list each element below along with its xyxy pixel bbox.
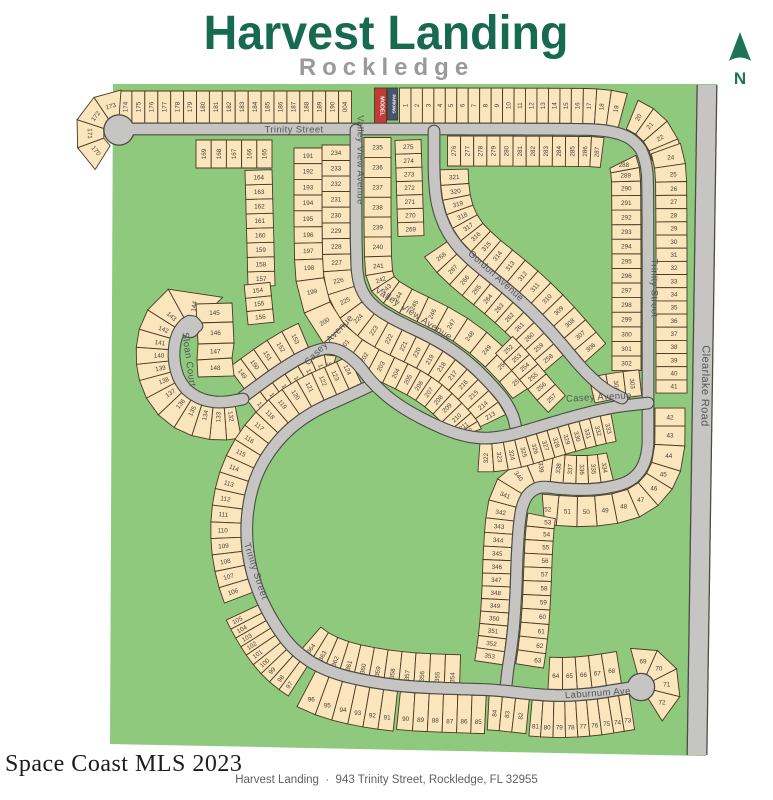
svg-text:270: 270: [405, 213, 416, 220]
svg-text:89: 89: [417, 717, 425, 724]
svg-text:275: 275: [403, 144, 414, 151]
svg-text:166: 166: [246, 148, 253, 159]
svg-text:323: 323: [495, 452, 503, 464]
svg-text:69: 69: [639, 658, 647, 665]
svg-text:80: 80: [544, 724, 552, 731]
svg-text:36: 36: [670, 318, 678, 325]
svg-text:140: 140: [154, 353, 165, 360]
svg-text:277: 277: [464, 145, 471, 156]
svg-text:301: 301: [621, 346, 632, 353]
svg-text:47: 47: [637, 497, 645, 504]
svg-text:295: 295: [621, 258, 632, 265]
svg-text:287: 287: [594, 146, 602, 157]
svg-text:269: 269: [406, 226, 417, 233]
svg-text:68: 68: [608, 668, 616, 675]
svg-text:184: 184: [252, 101, 259, 112]
svg-text:50: 50: [583, 509, 591, 516]
svg-text:227: 227: [331, 260, 342, 267]
svg-text:96: 96: [308, 697, 316, 704]
svg-text:299: 299: [621, 317, 632, 324]
svg-text:66: 66: [580, 672, 588, 679]
svg-text:58: 58: [540, 586, 548, 593]
svg-text:278: 278: [478, 145, 485, 156]
svg-text:146: 146: [210, 330, 221, 337]
svg-text:83: 83: [504, 710, 512, 718]
svg-text:MODEL: MODEL: [379, 96, 385, 116]
svg-text:Valley View Avenue: Valley View Avenue: [355, 115, 366, 205]
svg-text:94: 94: [339, 707, 347, 714]
svg-text:156: 156: [255, 314, 267, 322]
svg-text:280: 280: [504, 145, 511, 156]
svg-text:231: 231: [331, 197, 342, 204]
svg-text:167: 167: [231, 148, 238, 159]
svg-text:176: 176: [149, 101, 156, 112]
svg-text:238: 238: [372, 205, 383, 212]
svg-text:16: 16: [574, 102, 581, 110]
svg-text:163: 163: [254, 189, 265, 196]
svg-text:PARKING: PARKING: [392, 95, 397, 114]
svg-text:191: 191: [303, 153, 314, 160]
svg-text:74: 74: [614, 719, 622, 726]
svg-text:239: 239: [372, 224, 383, 231]
svg-text:195: 195: [303, 216, 314, 223]
svg-text:354: 354: [449, 672, 456, 683]
svg-text:303: 303: [628, 378, 636, 390]
svg-text:41: 41: [670, 384, 678, 391]
svg-text:178: 178: [174, 101, 181, 112]
svg-text:78: 78: [568, 724, 576, 731]
svg-text:46: 46: [650, 486, 658, 493]
svg-text:48: 48: [620, 504, 628, 511]
svg-text:182: 182: [226, 101, 233, 112]
svg-text:197: 197: [303, 248, 314, 255]
svg-text:198: 198: [304, 265, 315, 272]
svg-text:133: 133: [215, 411, 222, 422]
svg-text:31: 31: [670, 252, 678, 259]
svg-text:57: 57: [541, 572, 549, 579]
svg-text:161: 161: [255, 218, 266, 225]
svg-text:343: 343: [493, 523, 505, 531]
svg-text:283: 283: [543, 145, 550, 156]
svg-text:Trinity Street: Trinity Street: [264, 125, 323, 136]
svg-text:183: 183: [239, 101, 246, 112]
svg-text:234: 234: [331, 150, 342, 157]
svg-text:189: 189: [316, 101, 323, 112]
svg-text:86: 86: [460, 719, 468, 726]
svg-text:37: 37: [670, 331, 678, 338]
svg-text:338: 338: [555, 462, 563, 474]
svg-text:296: 296: [621, 273, 632, 280]
svg-text:75: 75: [603, 721, 611, 728]
svg-text:346: 346: [491, 564, 502, 571]
svg-text:337: 337: [567, 463, 575, 474]
svg-text:9: 9: [494, 103, 501, 107]
svg-text:Clearlake Road: Clearlake Road: [698, 345, 711, 427]
svg-text:42: 42: [666, 414, 674, 421]
svg-text:60: 60: [539, 614, 547, 621]
svg-text:282: 282: [530, 145, 537, 156]
svg-text:336: 336: [578, 464, 585, 475]
svg-text:18: 18: [599, 103, 607, 111]
svg-text:87: 87: [446, 718, 454, 725]
svg-text:300: 300: [621, 331, 632, 338]
svg-text:85: 85: [475, 719, 483, 726]
svg-text:33: 33: [670, 278, 678, 285]
svg-text:26: 26: [670, 186, 678, 193]
svg-text:289: 289: [620, 173, 631, 180]
svg-text:288: 288: [619, 162, 630, 169]
svg-text:95: 95: [324, 703, 332, 710]
svg-text:164: 164: [253, 175, 264, 182]
svg-text:233: 233: [331, 166, 342, 173]
svg-text:350: 350: [489, 615, 501, 623]
svg-text:90: 90: [402, 716, 410, 723]
svg-text:40: 40: [670, 371, 678, 378]
svg-text:171: 171: [86, 128, 93, 139]
svg-text:236: 236: [372, 165, 383, 172]
svg-text:230: 230: [331, 212, 342, 219]
svg-text:284: 284: [556, 146, 563, 157]
svg-text:348: 348: [490, 590, 501, 598]
svg-text:59: 59: [540, 600, 548, 607]
svg-text:339: 339: [537, 462, 545, 474]
svg-text:27: 27: [670, 199, 678, 206]
svg-text:358: 358: [389, 668, 397, 680]
svg-text:28: 28: [670, 212, 678, 219]
svg-text:272: 272: [404, 185, 415, 192]
svg-text:240: 240: [373, 244, 384, 251]
svg-text:232: 232: [331, 181, 342, 188]
svg-text:004: 004: [342, 101, 349, 112]
svg-text:357: 357: [404, 669, 412, 681]
svg-text:54: 54: [543, 532, 551, 539]
svg-text:65: 65: [566, 673, 574, 680]
svg-text:25: 25: [670, 171, 678, 178]
svg-text:194: 194: [303, 200, 314, 207]
svg-text:293: 293: [621, 229, 632, 236]
svg-text:302: 302: [621, 361, 632, 368]
svg-text:67: 67: [594, 671, 602, 678]
svg-text:72: 72: [658, 700, 666, 707]
svg-text:298: 298: [621, 302, 632, 309]
svg-text:229: 229: [331, 228, 342, 235]
svg-text:355: 355: [434, 671, 442, 682]
svg-text:351: 351: [487, 628, 499, 636]
svg-text:32: 32: [670, 265, 678, 272]
svg-text:168: 168: [216, 148, 223, 159]
svg-text:235: 235: [372, 145, 383, 152]
svg-text:88: 88: [432, 718, 440, 725]
svg-text:177: 177: [161, 101, 168, 112]
svg-text:17: 17: [586, 102, 593, 110]
svg-text:271: 271: [405, 199, 416, 206]
svg-text:192: 192: [303, 169, 314, 176]
svg-text:34: 34: [670, 292, 678, 299]
svg-text:159: 159: [255, 247, 266, 254]
svg-text:Trinity Street: Trinity Street: [649, 258, 660, 317]
svg-text:29: 29: [670, 226, 678, 233]
svg-text:35: 35: [670, 305, 678, 312]
svg-text:274: 274: [403, 158, 414, 165]
svg-text:321: 321: [449, 174, 460, 182]
svg-text:154: 154: [252, 287, 264, 295]
svg-text:84: 84: [491, 709, 499, 717]
svg-text:175: 175: [136, 101, 143, 112]
svg-text:7: 7: [471, 103, 478, 107]
svg-text:14: 14: [551, 102, 558, 110]
svg-text:4: 4: [437, 103, 444, 107]
svg-text:45: 45: [660, 472, 668, 479]
svg-text:179: 179: [187, 101, 194, 112]
svg-text:1: 1: [402, 103, 409, 107]
svg-text:61: 61: [538, 628, 546, 635]
svg-text:147: 147: [210, 348, 221, 355]
svg-text:285: 285: [569, 146, 576, 157]
svg-text:188: 188: [304, 101, 311, 112]
svg-text:91: 91: [384, 715, 392, 722]
svg-text:11: 11: [517, 102, 524, 109]
svg-text:273: 273: [404, 172, 415, 179]
svg-text:110: 110: [218, 528, 229, 535]
svg-text:290: 290: [621, 186, 632, 193]
svg-text:349: 349: [490, 603, 501, 611]
svg-text:39: 39: [670, 357, 678, 364]
svg-text:145: 145: [209, 310, 220, 317]
svg-text:62: 62: [536, 643, 544, 650]
svg-text:294: 294: [621, 244, 632, 251]
svg-text:81: 81: [532, 724, 540, 731]
svg-text:6: 6: [460, 103, 467, 107]
svg-text:71: 71: [663, 681, 671, 688]
svg-text:181: 181: [213, 101, 220, 112]
svg-text:15: 15: [563, 102, 570, 110]
svg-text:292: 292: [621, 215, 632, 222]
svg-text:185: 185: [265, 101, 272, 112]
svg-text:43: 43: [666, 432, 674, 439]
svg-text:169: 169: [201, 148, 208, 159]
svg-text:77: 77: [579, 724, 587, 731]
svg-text:352: 352: [486, 640, 498, 648]
svg-text:73: 73: [624, 718, 632, 725]
svg-text:109: 109: [218, 543, 230, 551]
svg-text:2: 2: [414, 103, 421, 107]
svg-text:38: 38: [670, 344, 678, 351]
svg-text:56: 56: [541, 558, 549, 565]
svg-text:279: 279: [491, 145, 498, 156]
svg-text:174: 174: [123, 101, 130, 112]
svg-text:320: 320: [450, 188, 462, 196]
svg-text:3: 3: [425, 103, 432, 107]
svg-text:49: 49: [602, 507, 610, 514]
svg-text:291: 291: [621, 200, 632, 207]
svg-text:13: 13: [540, 102, 547, 110]
svg-text:186: 186: [278, 101, 285, 112]
svg-text:92: 92: [369, 713, 377, 720]
svg-text:79: 79: [556, 725, 564, 732]
svg-text:30: 30: [670, 239, 678, 246]
svg-text:76: 76: [591, 723, 599, 730]
svg-text:157: 157: [256, 276, 267, 283]
svg-text:158: 158: [256, 262, 267, 269]
svg-text:70: 70: [655, 665, 663, 672]
svg-text:24: 24: [667, 154, 675, 161]
svg-text:160: 160: [255, 233, 266, 240]
svg-text:53: 53: [544, 519, 552, 526]
svg-text:241: 241: [373, 263, 384, 271]
svg-text:93: 93: [354, 710, 362, 717]
svg-text:347: 347: [491, 577, 502, 584]
svg-text:10: 10: [506, 102, 513, 110]
svg-text:344: 344: [493, 537, 504, 545]
svg-text:165: 165: [262, 148, 269, 159]
svg-text:281: 281: [517, 145, 524, 156]
svg-text:228: 228: [331, 244, 342, 251]
svg-text:276: 276: [451, 145, 458, 156]
svg-text:190: 190: [329, 101, 336, 112]
svg-text:52: 52: [544, 507, 552, 514]
svg-text:12: 12: [528, 102, 535, 110]
svg-text:193: 193: [303, 184, 314, 191]
svg-text:162: 162: [254, 204, 265, 211]
svg-text:82: 82: [517, 712, 525, 720]
svg-text:237: 237: [372, 185, 383, 192]
svg-text:51: 51: [564, 508, 572, 515]
svg-text:64: 64: [552, 673, 560, 680]
svg-text:196: 196: [303, 232, 314, 239]
svg-text:335: 335: [589, 464, 597, 476]
svg-text:297: 297: [621, 288, 632, 295]
svg-text:187: 187: [291, 101, 298, 112]
svg-text:356: 356: [419, 670, 427, 681]
svg-text:286: 286: [582, 146, 589, 157]
svg-text:8: 8: [483, 103, 490, 107]
svg-text:155: 155: [254, 300, 266, 308]
svg-text:180: 180: [200, 101, 207, 112]
svg-text:345: 345: [492, 550, 503, 558]
svg-text:322: 322: [483, 452, 490, 463]
svg-text:148: 148: [210, 365, 221, 372]
svg-text:55: 55: [542, 545, 550, 552]
svg-text:5: 5: [448, 103, 455, 107]
svg-text:111: 111: [218, 511, 229, 519]
svg-text:63: 63: [534, 657, 542, 664]
svg-text:44: 44: [665, 453, 673, 460]
